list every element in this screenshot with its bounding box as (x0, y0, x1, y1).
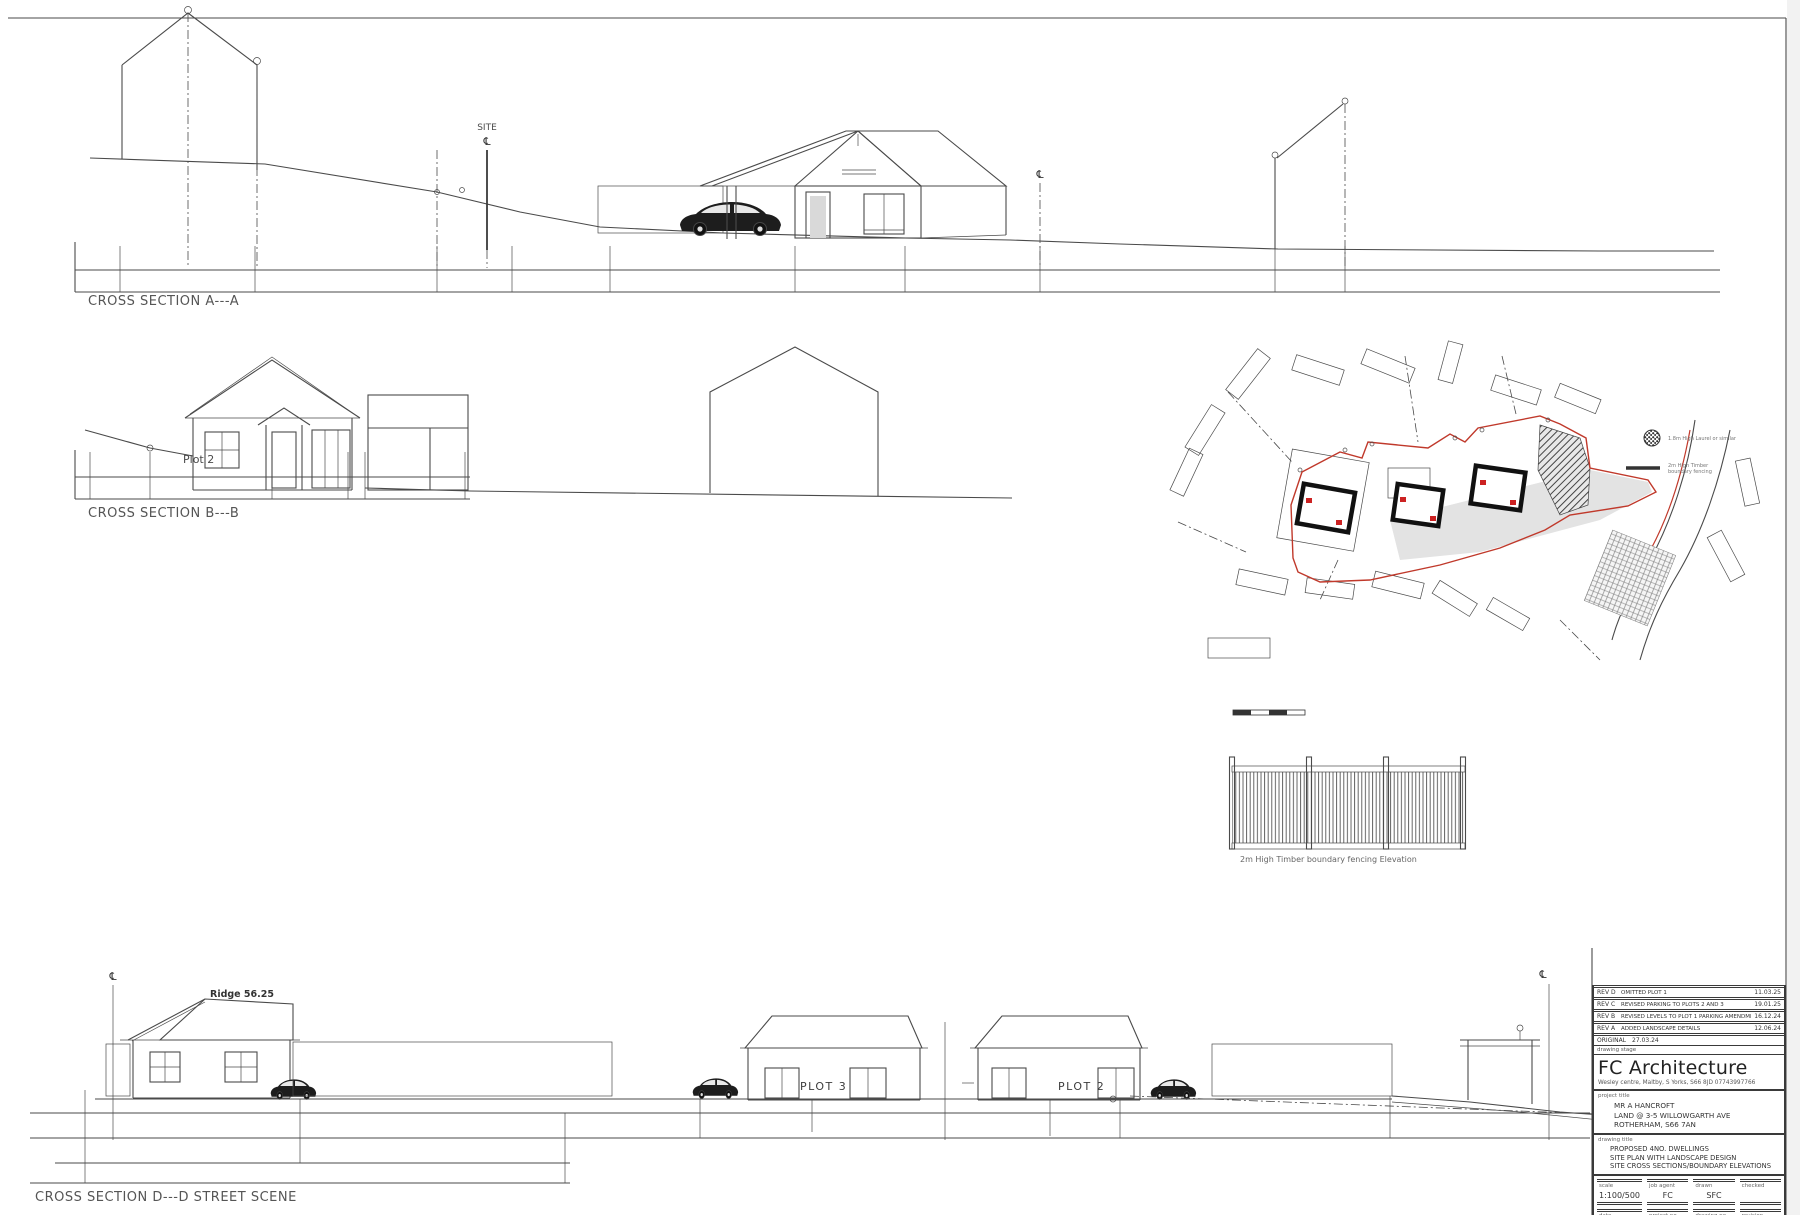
site-label: SITE (477, 123, 497, 133)
left-house-elevation: Ridge 56.25 (120, 989, 300, 1098)
drawing-title-2: SITE PLAN WITH LANDSCAPE DESIGN (1610, 1154, 1780, 1162)
drawn-value: SFC (1695, 1191, 1732, 1200)
sheet-border (8, 18, 1786, 1215)
revision-table: REV D OMITTED PLOT 1 11.03.25 REV C REVI… (1594, 985, 1784, 1036)
centerline-icon: ℄ (1538, 968, 1546, 981)
revision-desc: OMITTED PLOT 1 (1621, 990, 1751, 996)
legend-laurel-label: 1.8m High Laurel or similar (1668, 436, 1737, 442)
section-a-label: CROSS SECTION A---A (88, 294, 239, 309)
site-plan-legend: 1.8m High Laurel or similar 2m High Timb… (1626, 430, 1737, 475)
plot3-elevation: PLOT 3 (740, 1016, 928, 1132)
hedge (293, 1042, 612, 1096)
job-agent-value: FC (1649, 1191, 1686, 1200)
revision-row: REV A ADDED LANDSCAPE DETAILS 12.06.24 (1594, 1024, 1784, 1036)
checked-label: checked (1742, 1183, 1779, 1189)
job-agent-label: job agent (1649, 1183, 1686, 1189)
revision-date: 16.12.24 (1754, 1013, 1781, 1020)
scale-bar (1233, 710, 1305, 715)
date-field: date (1597, 1209, 1642, 1215)
original-label: ORIGINAL (1597, 1037, 1626, 1044)
section-b-label: CROSS SECTION B---B (88, 506, 239, 521)
drawing-no-field: drawing no. (1693, 1209, 1734, 1215)
car (693, 1078, 738, 1098)
original-date: 27.03.24 (1632, 1037, 1659, 1044)
revision-row: REV B REVISED LEVELS TO PLOT 1 PARKING A… (1594, 1012, 1784, 1024)
checked-field: checked (1740, 1179, 1781, 1205)
section-d-label: CROSS SECTION D---D STREET SCENE (35, 1190, 297, 1205)
ridge-level-label: Ridge 56.25 (210, 989, 274, 1000)
title-block-fields: scale 1:100/500 job agent FC drawn SFC c… (1594, 1174, 1784, 1215)
datum-bar-a (75, 242, 1720, 292)
hedge (1212, 1044, 1392, 1096)
drawing-title-label: drawing title (1598, 1137, 1780, 1143)
sheet-edge (1787, 0, 1800, 1215)
drawn-label: drawn (1695, 1183, 1732, 1189)
revision-date: 19.01.25 (1754, 1001, 1781, 1008)
revision-code: REV A (1597, 1025, 1621, 1032)
fence-elevation: 2m High Timber boundary fencing Elevatio… (1230, 757, 1466, 864)
revision-code: REV B (1597, 1013, 1621, 1020)
drawing-title-3: SITE CROSS SECTIONS/BOUNDARY ELEVATIONS (1610, 1162, 1780, 1170)
garage-elevation (368, 395, 468, 490)
plot2-street-label: PLOT 2 (1058, 1080, 1105, 1093)
scale-label: scale (1599, 1183, 1640, 1189)
drawing-title-section: drawing title PROPOSED 4NO. DWELLINGS SI… (1594, 1133, 1784, 1173)
firm-name: FC Architecture (1594, 1055, 1784, 1079)
street-scene: ℄ Ridge 56.25 (30, 968, 1700, 1205)
original-issue-row: ORIGINAL 27.03.24 (1594, 1036, 1784, 1046)
cross-section-b: Plot 2 CROSS SECTION B---B (75, 347, 1012, 521)
laurel-symbol-icon (1644, 430, 1660, 446)
site-plan: 1.8m High Laurel or similar 2m High Timb… (1170, 341, 1760, 715)
neighbour-outline (710, 347, 878, 496)
right-fence-outline (1460, 1025, 1540, 1104)
site-address-1: LAND @ 3-5 WILLOWGARTH AVE (1614, 1111, 1780, 1121)
revision-desc: ADDED LANDSCAPE DETAILS (1621, 1026, 1751, 1032)
car (1151, 1079, 1196, 1099)
revision-row: REV D OMITTED PLOT 1 11.03.25 (1594, 988, 1784, 1000)
car (271, 1079, 316, 1099)
project-no-field: project no. (1647, 1209, 1688, 1215)
plot2-street-elevation: PLOT 2 (970, 1016, 1148, 1136)
project-title-label: project title (1598, 1093, 1780, 1099)
drawn-field: drawn SFC (1693, 1179, 1734, 1205)
legend-fence-label-2: boundary fencing (1668, 469, 1712, 475)
revision-field: revision (1740, 1209, 1781, 1215)
centerline-icon: ℄ (482, 135, 490, 148)
job-agent-field: job agent FC (1647, 1179, 1688, 1205)
title-block: REV D OMITTED PLOT 1 11.03.25 REV C REVI… (1592, 985, 1786, 1215)
scale-value: 1:100/500 (1599, 1191, 1640, 1200)
firm-address: Wesley centre, Maltby, S Yorks, S66 8JD … (1594, 1079, 1784, 1089)
plot2-label: Plot 2 (183, 453, 214, 466)
cross-section-a: SITE ℄ (75, 7, 1720, 310)
scale-field: scale 1:100/500 (1597, 1179, 1642, 1205)
centerline-icon: ℄ (1035, 168, 1043, 181)
revision-code: REV C (1597, 1001, 1621, 1008)
datum-bar-d (30, 1090, 1590, 1183)
drawing-stage-label: drawing stage (1594, 1046, 1784, 1055)
mini-fence-detail (1208, 638, 1270, 658)
revision-code: REV D (1597, 989, 1621, 996)
plot2-elevation: Plot 2 (183, 357, 360, 490)
revision-date: 11.03.25 (1754, 989, 1781, 996)
client-name: MR A HANCROFT (1614, 1101, 1780, 1111)
revision-date: 12.06.24 (1754, 1025, 1781, 1032)
drawing-sheet: 1.8m High Laurel or similar 2m High Timb… (0, 0, 1800, 1215)
revision-desc: REVISED PARKING TO PLOTS 2 AND 3 (1621, 1002, 1751, 1008)
revision-desc: REVISED LEVELS TO PLOT 1 PARKING AMENDME… (1621, 1014, 1751, 1020)
fence-label: 2m High Timber boundary fencing Elevatio… (1240, 855, 1417, 864)
centerline-icon: ℄ (108, 970, 116, 983)
drawing-title-1: PROPOSED 4NO. DWELLINGS (1610, 1145, 1780, 1153)
plot3-label: PLOT 3 (800, 1080, 847, 1093)
revision-row: REV C REVISED PARKING TO PLOTS 2 AND 3 1… (1594, 1000, 1784, 1012)
site-address-2: ROTHERHAM, S66 7AN (1614, 1120, 1780, 1130)
car (680, 202, 781, 236)
project-title-section: project title MR A HANCROFT LAND @ 3-5 W… (1594, 1089, 1784, 1133)
